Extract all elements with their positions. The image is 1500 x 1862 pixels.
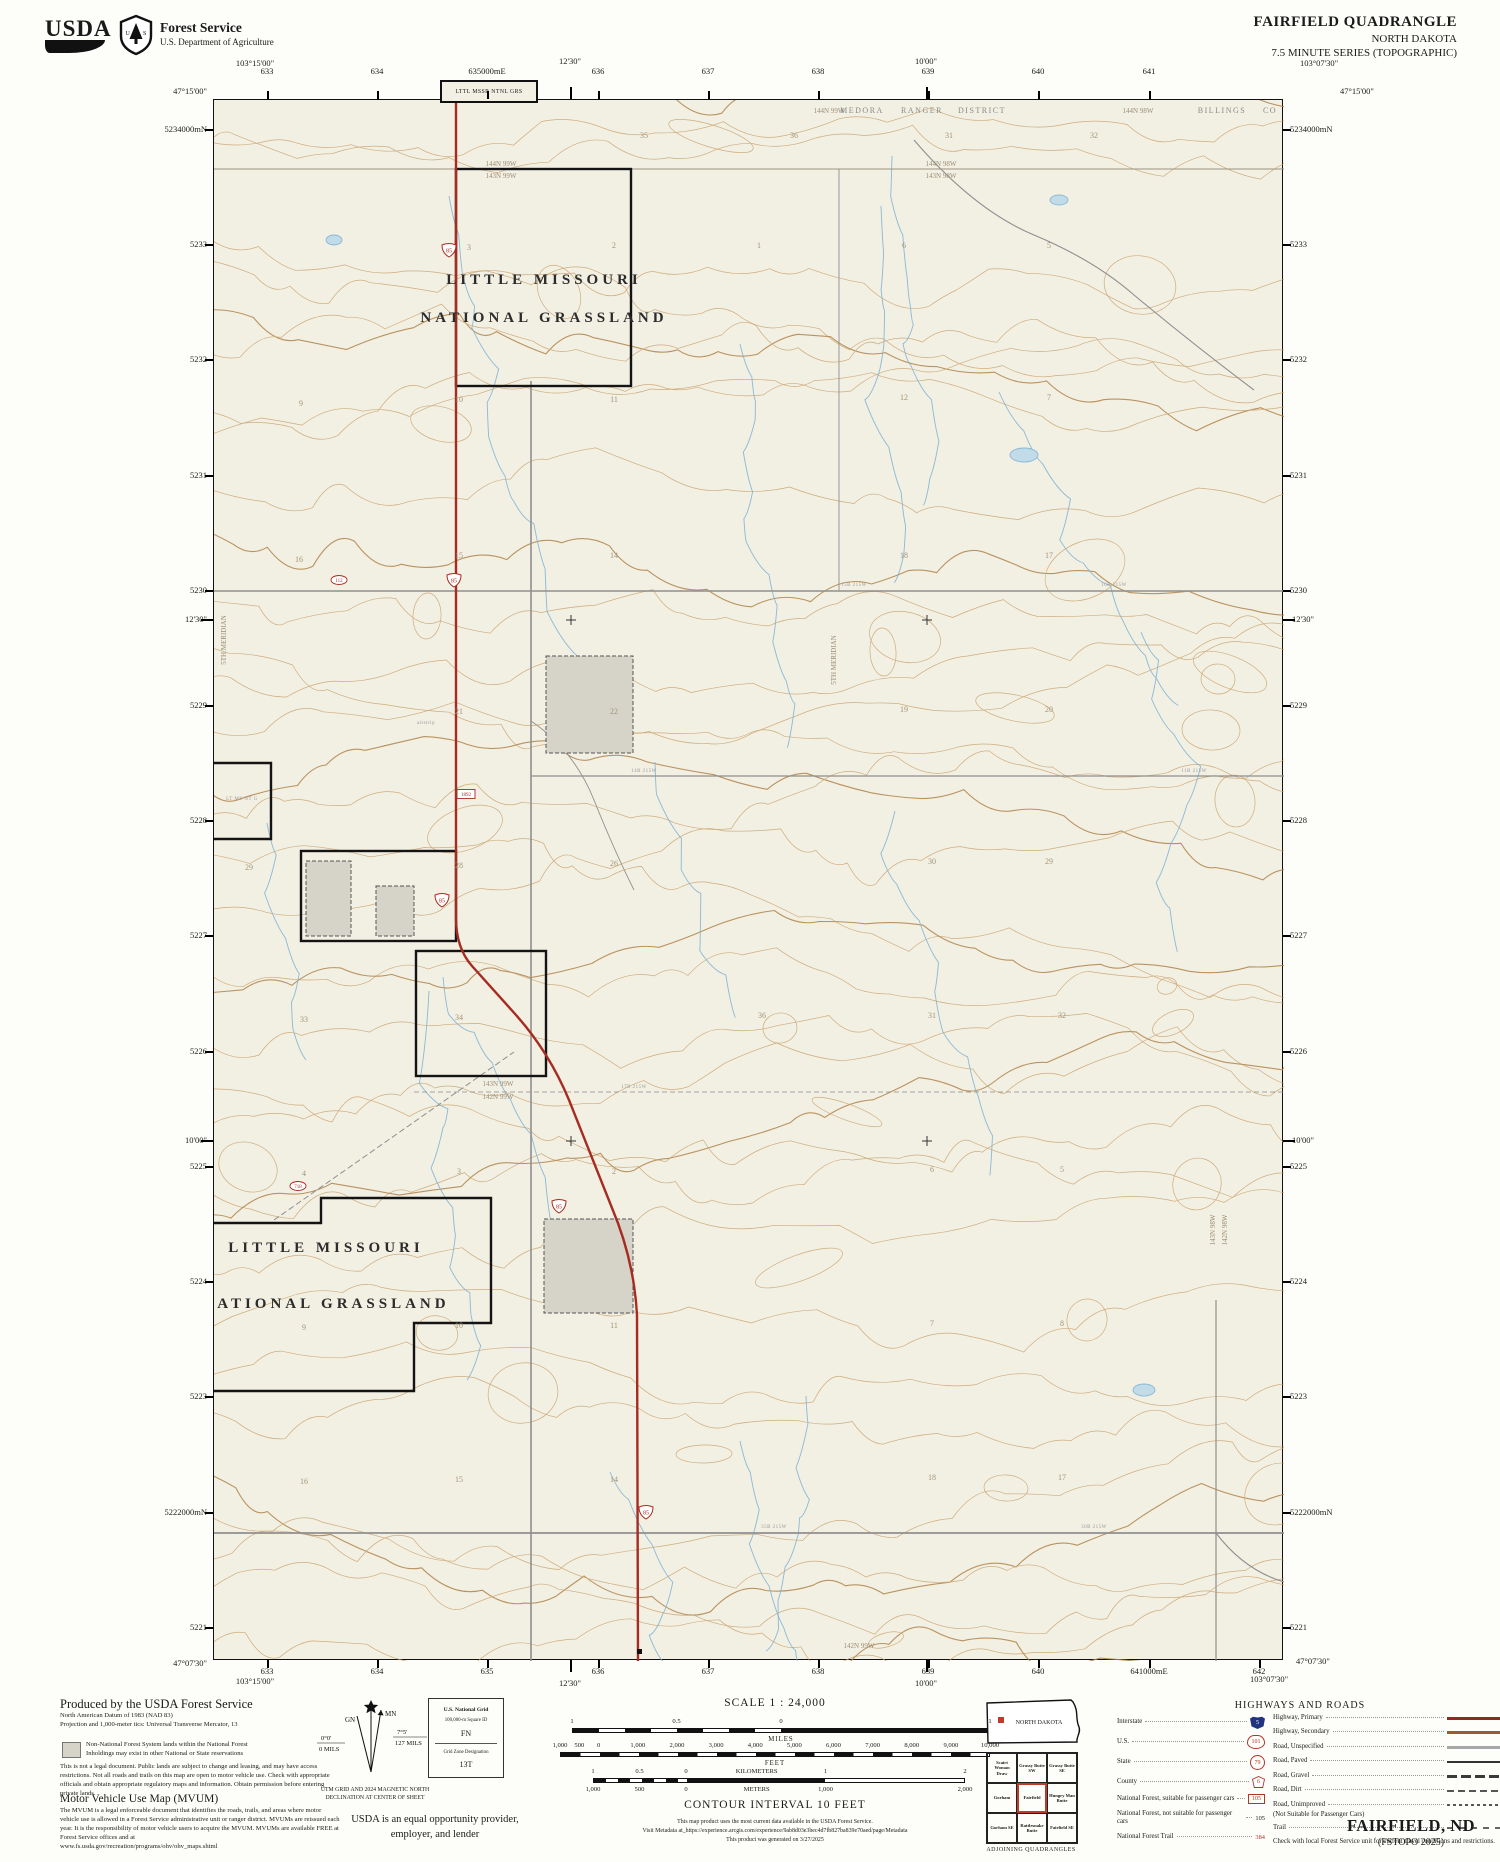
feet-label: 6,000 xyxy=(826,1742,841,1749)
section-number: 2 xyxy=(612,241,616,250)
scale-bar-km xyxy=(593,1778,965,1783)
graticule-minute-label: 10'00" xyxy=(915,1678,937,1688)
grid-tick xyxy=(1283,619,1295,621)
corner-lon-tr: 103°07'30" xyxy=(1300,58,1338,68)
grid-tick xyxy=(1038,1660,1040,1668)
grid-tick xyxy=(205,359,213,361)
scale-title: SCALE 1 : 24,000 xyxy=(660,1697,890,1709)
graticule-minute-label: 12'30" xyxy=(1292,614,1314,624)
map-area: LITTLE MISSOURINATIONAL GRASSLANDLITTLE … xyxy=(213,99,1283,1660)
agency-name: Forest Service xyxy=(160,20,242,36)
road-style-sample xyxy=(1447,1775,1500,1778)
map-label: LITTLE MISSOURI xyxy=(228,1240,423,1256)
km-label: 2 xyxy=(963,1768,966,1775)
eo-line2: employer, and lender xyxy=(310,1827,560,1842)
grid-tick xyxy=(1283,1396,1291,1398)
northing-label: 5228 xyxy=(1290,815,1307,825)
grid-tick xyxy=(598,91,600,99)
grassland-corner-box: LTTL MSSR NTNL GRS xyxy=(440,80,538,103)
metadata-line3: This product was generated on 3/27/2025 xyxy=(530,1836,1020,1845)
map-label: 144N 98W xyxy=(926,160,957,168)
section-number: 11 xyxy=(610,1321,618,1330)
quad-location-marker xyxy=(998,1717,1004,1723)
legend-label: State xyxy=(1117,1758,1131,1766)
map-label: CO xyxy=(1263,106,1277,115)
mvum-url: www.fs.usda.gov/recreation/programs/ohv/… xyxy=(60,1843,340,1852)
section-number: 4 xyxy=(302,1169,306,1178)
corner-lat-bl: 47°07'30" xyxy=(173,1658,207,1668)
adjoining-caption: ADJOINING QUADRANGLES xyxy=(956,1847,1106,1853)
graticule-minute-label: 10'00" xyxy=(1292,1135,1314,1145)
legend-row: Interstate5 xyxy=(1117,1716,1265,1729)
grid-tick xyxy=(570,1660,572,1672)
meters-label: 1,000 xyxy=(818,1786,833,1793)
grid-tick xyxy=(926,87,928,99)
northing-label: 5234000mN xyxy=(1290,124,1333,134)
grid-tick xyxy=(205,590,213,592)
graticule-minute-label: 12'30" xyxy=(559,1678,581,1688)
declination-caption: UTM GRID AND 2024 MAGNETIC NORTH DECLINA… xyxy=(290,1786,460,1802)
adjoining-quad-fairfield: Fairfield xyxy=(1017,1783,1047,1813)
section-number: 31 xyxy=(928,1011,936,1020)
non-nf-parcels xyxy=(306,656,633,1313)
svg-text:85: 85 xyxy=(556,1205,562,1211)
map-labels: LITTLE MISSOURINATIONAL GRASSLANDLITTLE … xyxy=(214,106,1277,1650)
map-label: airstrip xyxy=(417,721,435,726)
state-route-marker-icon: 79 xyxy=(1250,1755,1265,1770)
svg-text:85: 85 xyxy=(451,579,457,585)
northing-label: 5230 xyxy=(1290,585,1307,595)
legend-label: Trail xyxy=(1273,1824,1286,1832)
miles-label: 0 xyxy=(779,1718,782,1725)
road-style-sample xyxy=(1447,1804,1500,1806)
section-number: 11 xyxy=(610,395,618,404)
svg-text:1892: 1892 xyxy=(461,793,472,798)
grid-tick xyxy=(205,1281,213,1283)
section-number: 14 xyxy=(610,1475,618,1484)
section-number: 15 xyxy=(455,1475,463,1484)
metadata-line1: This map product uses the most current d… xyxy=(530,1818,1020,1827)
grid-tick xyxy=(926,1660,928,1672)
svg-text:85: 85 xyxy=(643,1511,649,1517)
section-number: 9 xyxy=(299,399,303,408)
legend-row: Road, Unspecified xyxy=(1273,1743,1500,1751)
road-number-badge: 1892 xyxy=(457,790,475,799)
section-number: 33 xyxy=(300,1015,308,1024)
map-label: 142N 99W xyxy=(844,1642,875,1650)
grid-tick xyxy=(267,91,269,99)
road-name: 17B 215W xyxy=(621,1085,647,1090)
us-85-shield: 85 xyxy=(552,1200,566,1214)
us-85-shield: 85 xyxy=(442,244,456,258)
grid-tick xyxy=(1149,1660,1151,1668)
scale-bar-feet xyxy=(560,1752,990,1757)
grid-tick xyxy=(205,244,213,246)
map-label: DISTRICT xyxy=(958,106,1006,115)
section-number: 3 xyxy=(457,1167,461,1176)
section-number: 10 xyxy=(455,1321,463,1330)
road-name: 15B 215W xyxy=(841,583,867,588)
section-roads xyxy=(214,140,1284,1661)
road-style-sample xyxy=(1447,1746,1500,1749)
map-label: 142N 98W xyxy=(1221,1214,1229,1245)
miles-label: 1 xyxy=(988,1718,991,1725)
mvum-body: The MVUM is a legal enforceable document… xyxy=(60,1807,340,1843)
section-number: 18 xyxy=(900,551,908,560)
grid-tick xyxy=(205,1166,213,1168)
easting-label: 641 xyxy=(1143,66,1156,76)
northing-label: 5234000mN xyxy=(165,124,208,134)
svg-text:112: 112 xyxy=(335,579,343,584)
section-number: 28 xyxy=(455,861,463,870)
quad-state: NORTH DAKOTA xyxy=(1254,33,1457,45)
adjoining-quad-gorham: Gorham xyxy=(987,1783,1017,1813)
feet-label: 10,000 xyxy=(981,1742,999,1749)
section-number: 5 xyxy=(1060,1165,1064,1174)
legend-row: Road, Paved xyxy=(1273,1757,1500,1765)
svg-text:U: U xyxy=(126,31,131,37)
grid-tick xyxy=(377,91,379,99)
road-name: 30B 215W xyxy=(1081,1525,1107,1530)
section-number: 6 xyxy=(930,1165,934,1174)
usng-square-label: 100,000-m Square ID xyxy=(430,1718,502,1723)
feet-label: 1,000 xyxy=(553,1742,568,1749)
corner-lat-tr: 47°15'00" xyxy=(1340,86,1374,96)
feet-label: 9,000 xyxy=(943,1742,958,1749)
section-number: 9 xyxy=(302,1323,306,1332)
meters-label: METERS xyxy=(744,1786,770,1793)
usng-zone-label: Grid Zone Designation xyxy=(430,1750,502,1755)
northing-label: 5232 xyxy=(1290,354,1307,364)
map-label: NATIONAL GRASSLAND xyxy=(420,310,667,326)
map-label: RANGER xyxy=(901,106,943,115)
grid-tick xyxy=(928,91,930,99)
map-label: MEDORA xyxy=(840,106,884,115)
section-number: 22 xyxy=(610,707,618,716)
section-number: 16 xyxy=(300,1477,308,1486)
grid-tick xyxy=(1283,1051,1291,1053)
adjoining-quad-hungry-man-butte: Hungry Man Butte xyxy=(1047,1783,1077,1813)
eo-line1: USDA is an equal opportunity provider, xyxy=(310,1812,560,1827)
us-85-shield: 85 xyxy=(447,574,461,588)
section-number: 7 xyxy=(930,1319,934,1328)
grid-tick xyxy=(487,91,489,99)
grid-tick xyxy=(708,91,710,99)
grid-tick xyxy=(928,1660,930,1668)
section-number: 36 xyxy=(758,1011,766,1020)
map-label: 144N 99W xyxy=(814,107,845,115)
adjoining-quad-fairfield-se: Fairfield SE xyxy=(1047,1813,1077,1843)
km-label: 0.5 xyxy=(635,1768,643,1775)
svg-text:0 MILS: 0 MILS xyxy=(319,1746,340,1753)
northing-label: 5226 xyxy=(1290,1046,1307,1056)
mvum-title: Motor Vehicle Use Map (MVUM) xyxy=(60,1793,218,1805)
agency-dept: U.S. Department of Agriculture xyxy=(160,37,274,47)
svg-text:718: 718 xyxy=(294,1185,302,1190)
road-style-sample xyxy=(1447,1717,1500,1720)
legend-label: Highway, Secondary xyxy=(1273,1728,1330,1736)
corner-lat-tl: 47°15'00" xyxy=(173,86,207,96)
grid-tick xyxy=(1283,1166,1291,1168)
legend-row: National Forest Trail384 xyxy=(1117,1833,1265,1841)
topo-map: LITTLE MISSOURINATIONAL GRASSLANDLITTLE … xyxy=(214,100,1284,1661)
legend-row: Road, Gravel xyxy=(1273,1772,1500,1780)
section-number: 32 xyxy=(1058,1011,1066,1020)
grid-tick xyxy=(205,705,213,707)
map-label: BILLINGS xyxy=(1198,106,1246,115)
contour-interval-note: CONTOUR INTERVAL 10 FEET xyxy=(600,1799,950,1811)
usda-wordmark: USDA xyxy=(45,16,111,42)
grid-tick xyxy=(1283,359,1291,361)
easting-label: 635000mE xyxy=(468,66,505,76)
building-symbol xyxy=(637,1649,642,1654)
section-number: 17 xyxy=(1058,1473,1066,1482)
grid-tick xyxy=(1283,1627,1291,1629)
legend-row: Road, Dirt xyxy=(1273,1786,1500,1794)
grassland-boundaries xyxy=(214,169,631,1391)
miles-label: 1 xyxy=(570,1718,573,1725)
northing-label: 5221 xyxy=(1290,1622,1307,1632)
feet-label: 8,000 xyxy=(904,1742,919,1749)
feet-label: 7,000 xyxy=(865,1742,880,1749)
feet-label: 5,000 xyxy=(787,1742,802,1749)
northing-label: 5222000mN xyxy=(165,1507,208,1517)
legend-label: Road, Dirt xyxy=(1273,1786,1302,1794)
road-style-sample xyxy=(1447,1790,1500,1792)
km-label: KILOMETERS xyxy=(736,1768,778,1775)
legend-row: Highway, Primary xyxy=(1273,1714,1500,1722)
road-name: 35B 215W xyxy=(761,1525,787,1530)
interstate-shield-icon: 5 xyxy=(1250,1716,1265,1729)
svg-text:127 MILS: 127 MILS xyxy=(395,1740,422,1747)
section-number: 34 xyxy=(455,1013,463,1022)
feet-label: 0 xyxy=(597,1742,600,1749)
grid-tick xyxy=(1038,91,1040,99)
legend-row: National Forest, suitable for passenger … xyxy=(1117,1794,1265,1804)
section-number: 10 xyxy=(455,395,463,404)
map-label: 144N 98W xyxy=(1123,107,1154,115)
section-number: 30 xyxy=(928,857,936,866)
map-label: 144N 99W xyxy=(486,160,517,168)
section-number: 1 xyxy=(757,241,761,250)
grid-tick xyxy=(205,1627,213,1629)
legend-label: National Forest, not suitable for passen… xyxy=(1117,1810,1243,1827)
contour-lines xyxy=(214,100,1284,1661)
grid-tick xyxy=(205,129,213,131)
easting-label: 639 xyxy=(922,66,935,76)
road-name: 16B 215W xyxy=(1101,583,1127,588)
meters-label: 500 xyxy=(635,1786,645,1793)
easting-label: 638 xyxy=(812,66,825,76)
section-number: 6 xyxy=(902,241,906,250)
map-label: 143N 99W xyxy=(483,1080,514,1088)
scale-bar-miles xyxy=(572,1728,990,1733)
northing-label: 5231 xyxy=(1290,470,1307,480)
us-85-highway xyxy=(456,100,638,1661)
nf-road-number-badge: 105 xyxy=(1248,1794,1265,1804)
grid-tick xyxy=(570,87,572,99)
legend-row: State79 xyxy=(1117,1755,1265,1770)
county-route-marker-icon: 6 xyxy=(1252,1776,1265,1788)
feet-caption: FEET xyxy=(765,1760,785,1767)
legend-label: U.S. xyxy=(1117,1738,1129,1746)
legend-label: Road, Unspecified xyxy=(1273,1743,1324,1751)
section-number: 19 xyxy=(900,705,908,714)
non-nf-swatch xyxy=(62,1742,81,1758)
legend-row: National Forest, not suitable for passen… xyxy=(1117,1810,1265,1827)
map-label: 143N 99W xyxy=(486,172,517,180)
section-number: 26 xyxy=(610,859,618,868)
section-number: 8 xyxy=(1060,1319,1064,1328)
grid-tick xyxy=(267,1660,269,1668)
grid-tick xyxy=(205,935,213,937)
section-number: 12 xyxy=(900,393,908,402)
feet-label: 2,000 xyxy=(670,1742,685,1749)
legend-label: National Forest, suitable for passenger … xyxy=(1117,1795,1234,1803)
svg-text:0°0': 0°0' xyxy=(321,1735,331,1742)
grid-tick xyxy=(1259,1660,1261,1668)
easting-label: 640 xyxy=(1032,66,1045,76)
gn-label: GN xyxy=(345,1716,355,1724)
legend-row: County6 xyxy=(1117,1776,1265,1788)
grid-tick xyxy=(1283,244,1291,246)
usng-square-id: FN xyxy=(430,1729,502,1738)
km-label: 1 xyxy=(824,1768,827,1775)
grid-tick xyxy=(1283,820,1291,822)
legend-row: Road, Unimproved xyxy=(1273,1801,1500,1809)
grid-tick xyxy=(201,1140,213,1142)
map-label: 5TH MERIDIAN xyxy=(220,615,228,665)
feet-label: 1,000 xyxy=(630,1742,645,1749)
declination-diagram: MN GN 0°0' 0 MILS 7°5' 127 MILS xyxy=(305,1694,445,1791)
legend-row: U.S.101 xyxy=(1117,1735,1265,1749)
northing-label: 5227 xyxy=(1290,930,1307,940)
document-name-block: FAIRFIELD, ND (FSTOPO 2025) xyxy=(1330,1816,1492,1848)
corner-lat-br: 47°07'30" xyxy=(1296,1656,1330,1666)
svg-text:S: S xyxy=(143,31,146,37)
section-number: 29 xyxy=(245,863,253,872)
grid-tick xyxy=(205,475,213,477)
miles-label: 0.5 xyxy=(672,1718,680,1725)
grid-tick xyxy=(1283,705,1291,707)
section-number: 20 xyxy=(1045,705,1053,714)
grid-tick xyxy=(1149,91,1151,99)
section-number: 2 xyxy=(612,1167,616,1176)
adjoining-quad-grassy-butte-se: Grassy Butte SE xyxy=(1047,1753,1077,1783)
usda-logo: USDA xyxy=(45,16,111,58)
northing-label: 5223 xyxy=(1290,1391,1307,1401)
grid-tick xyxy=(201,619,213,621)
easting-label: 633 xyxy=(261,66,274,76)
equal-opportunity-note: USDA is an equal opportunity provider, e… xyxy=(310,1812,560,1842)
adjoining-quad-gorham-se: Gorham SE xyxy=(987,1813,1017,1843)
legend-label: County xyxy=(1117,1778,1137,1786)
adjoining-quad-rattlesnake-butte: Rattlesnake Butte xyxy=(1017,1813,1047,1843)
map-label: LITTLE MISSOURI xyxy=(446,272,641,288)
road-style-sample xyxy=(1447,1761,1500,1763)
legend-row: Highway, Secondary xyxy=(1273,1728,1500,1736)
map-sheet: USDA U S Forest Service U.S. Department … xyxy=(0,0,1500,1862)
forest-service-shield-icon: U S xyxy=(118,14,154,61)
usng-zone: 13T xyxy=(430,1760,502,1769)
northing-label: 5225 xyxy=(1290,1161,1307,1171)
grid-tick xyxy=(205,1051,213,1053)
map-label: 5TH MERIDIAN xyxy=(830,635,838,685)
section-number: 36 xyxy=(790,131,798,140)
adjoining-quad-grassy-butte-sw: Grassy Butte SW xyxy=(1017,1753,1047,1783)
map-label: 142N 99W xyxy=(483,1093,514,1101)
grid-tick xyxy=(1283,129,1291,131)
doc-title: FAIRFIELD, ND xyxy=(1330,1816,1492,1836)
usng-box: U.S. National Grid 100,000-m Square ID F… xyxy=(428,1698,504,1778)
section-number: 15 xyxy=(455,551,463,560)
graticule-minute-label: 12'30" xyxy=(559,56,581,66)
legend-label: Highway, Primary xyxy=(1273,1714,1323,1722)
road-name: 14B 215W xyxy=(631,769,657,774)
road-name: 11B 215W xyxy=(1181,769,1207,774)
legend-label: Road, Unimproved xyxy=(1273,1801,1325,1809)
northing-label: 5229 xyxy=(1290,700,1307,710)
section-number: 35 xyxy=(640,131,648,140)
grid-tick xyxy=(1283,1140,1295,1142)
us-85-shield: 85 xyxy=(639,1506,653,1520)
feet-label: 500 xyxy=(574,1742,584,1749)
section-number: 18 xyxy=(928,1473,936,1482)
svg-text:85: 85 xyxy=(446,249,452,255)
legend-label: National Forest Trail xyxy=(1117,1833,1174,1841)
section-number: 5 xyxy=(1047,241,1051,250)
legend-label: Road, Paved xyxy=(1273,1757,1307,1765)
easting-label: 636 xyxy=(592,66,605,76)
legend-label: Interstate xyxy=(1117,1718,1142,1726)
grid-tick xyxy=(598,1660,600,1668)
section-number: 32 xyxy=(1090,131,1098,140)
nf-road-number: 105 xyxy=(1255,1815,1265,1822)
grid-tick xyxy=(487,1660,489,1668)
section-number: 14 xyxy=(610,551,618,560)
nf-trail-number: 384 xyxy=(1255,1834,1265,1841)
sheet-title-block: FAIRFIELD QUADRANGLE NORTH DAKOTA 7.5 MI… xyxy=(1254,14,1457,59)
map-label: LT MS NT G xyxy=(226,797,258,802)
section-number: 3 xyxy=(467,243,471,252)
usng-title: U.S. National Grid xyxy=(430,1707,502,1713)
easting-label: 637 xyxy=(702,66,715,76)
quad-title: FAIRFIELD QUADRANGLE xyxy=(1254,14,1457,31)
map-label: 143N 98W xyxy=(926,172,957,180)
declination-caption-line1: UTM GRID AND 2024 MAGNETIC NORTH xyxy=(290,1786,460,1794)
grid-tick xyxy=(818,91,820,99)
section-number: 17 xyxy=(1045,551,1053,560)
metadata-note: This map product uses the most current d… xyxy=(530,1818,1020,1845)
km-label: 1 xyxy=(591,1768,594,1775)
grid-tick xyxy=(708,1660,710,1668)
adjoining-quad-scairt-woman-draw: Scairt Woman Draw xyxy=(987,1753,1017,1783)
svg-text:85: 85 xyxy=(439,899,445,905)
inset-state-label: NORTH DAKOTA xyxy=(1016,1720,1063,1726)
easting-label: 634 xyxy=(371,66,384,76)
quad-series: 7.5 MINUTE SERIES (TOPOGRAPHIC) xyxy=(1254,47,1457,59)
grid-tick xyxy=(205,1396,213,1398)
grid-tick xyxy=(1283,1512,1291,1514)
corner-lon-bl: 103°15'00" xyxy=(236,1676,274,1686)
declination-caption-line2: DECLINATION AT CENTER OF SHEET xyxy=(290,1794,460,1802)
section-number: 29 xyxy=(1045,857,1053,866)
section-number: 16 xyxy=(295,555,303,564)
grid-tick xyxy=(818,1660,820,1668)
metadata-line2: Visit Metadata at_https://experience.arc… xyxy=(530,1827,1020,1836)
grid-tick xyxy=(1283,1281,1291,1283)
road-number-badge: 718 xyxy=(290,1182,306,1191)
